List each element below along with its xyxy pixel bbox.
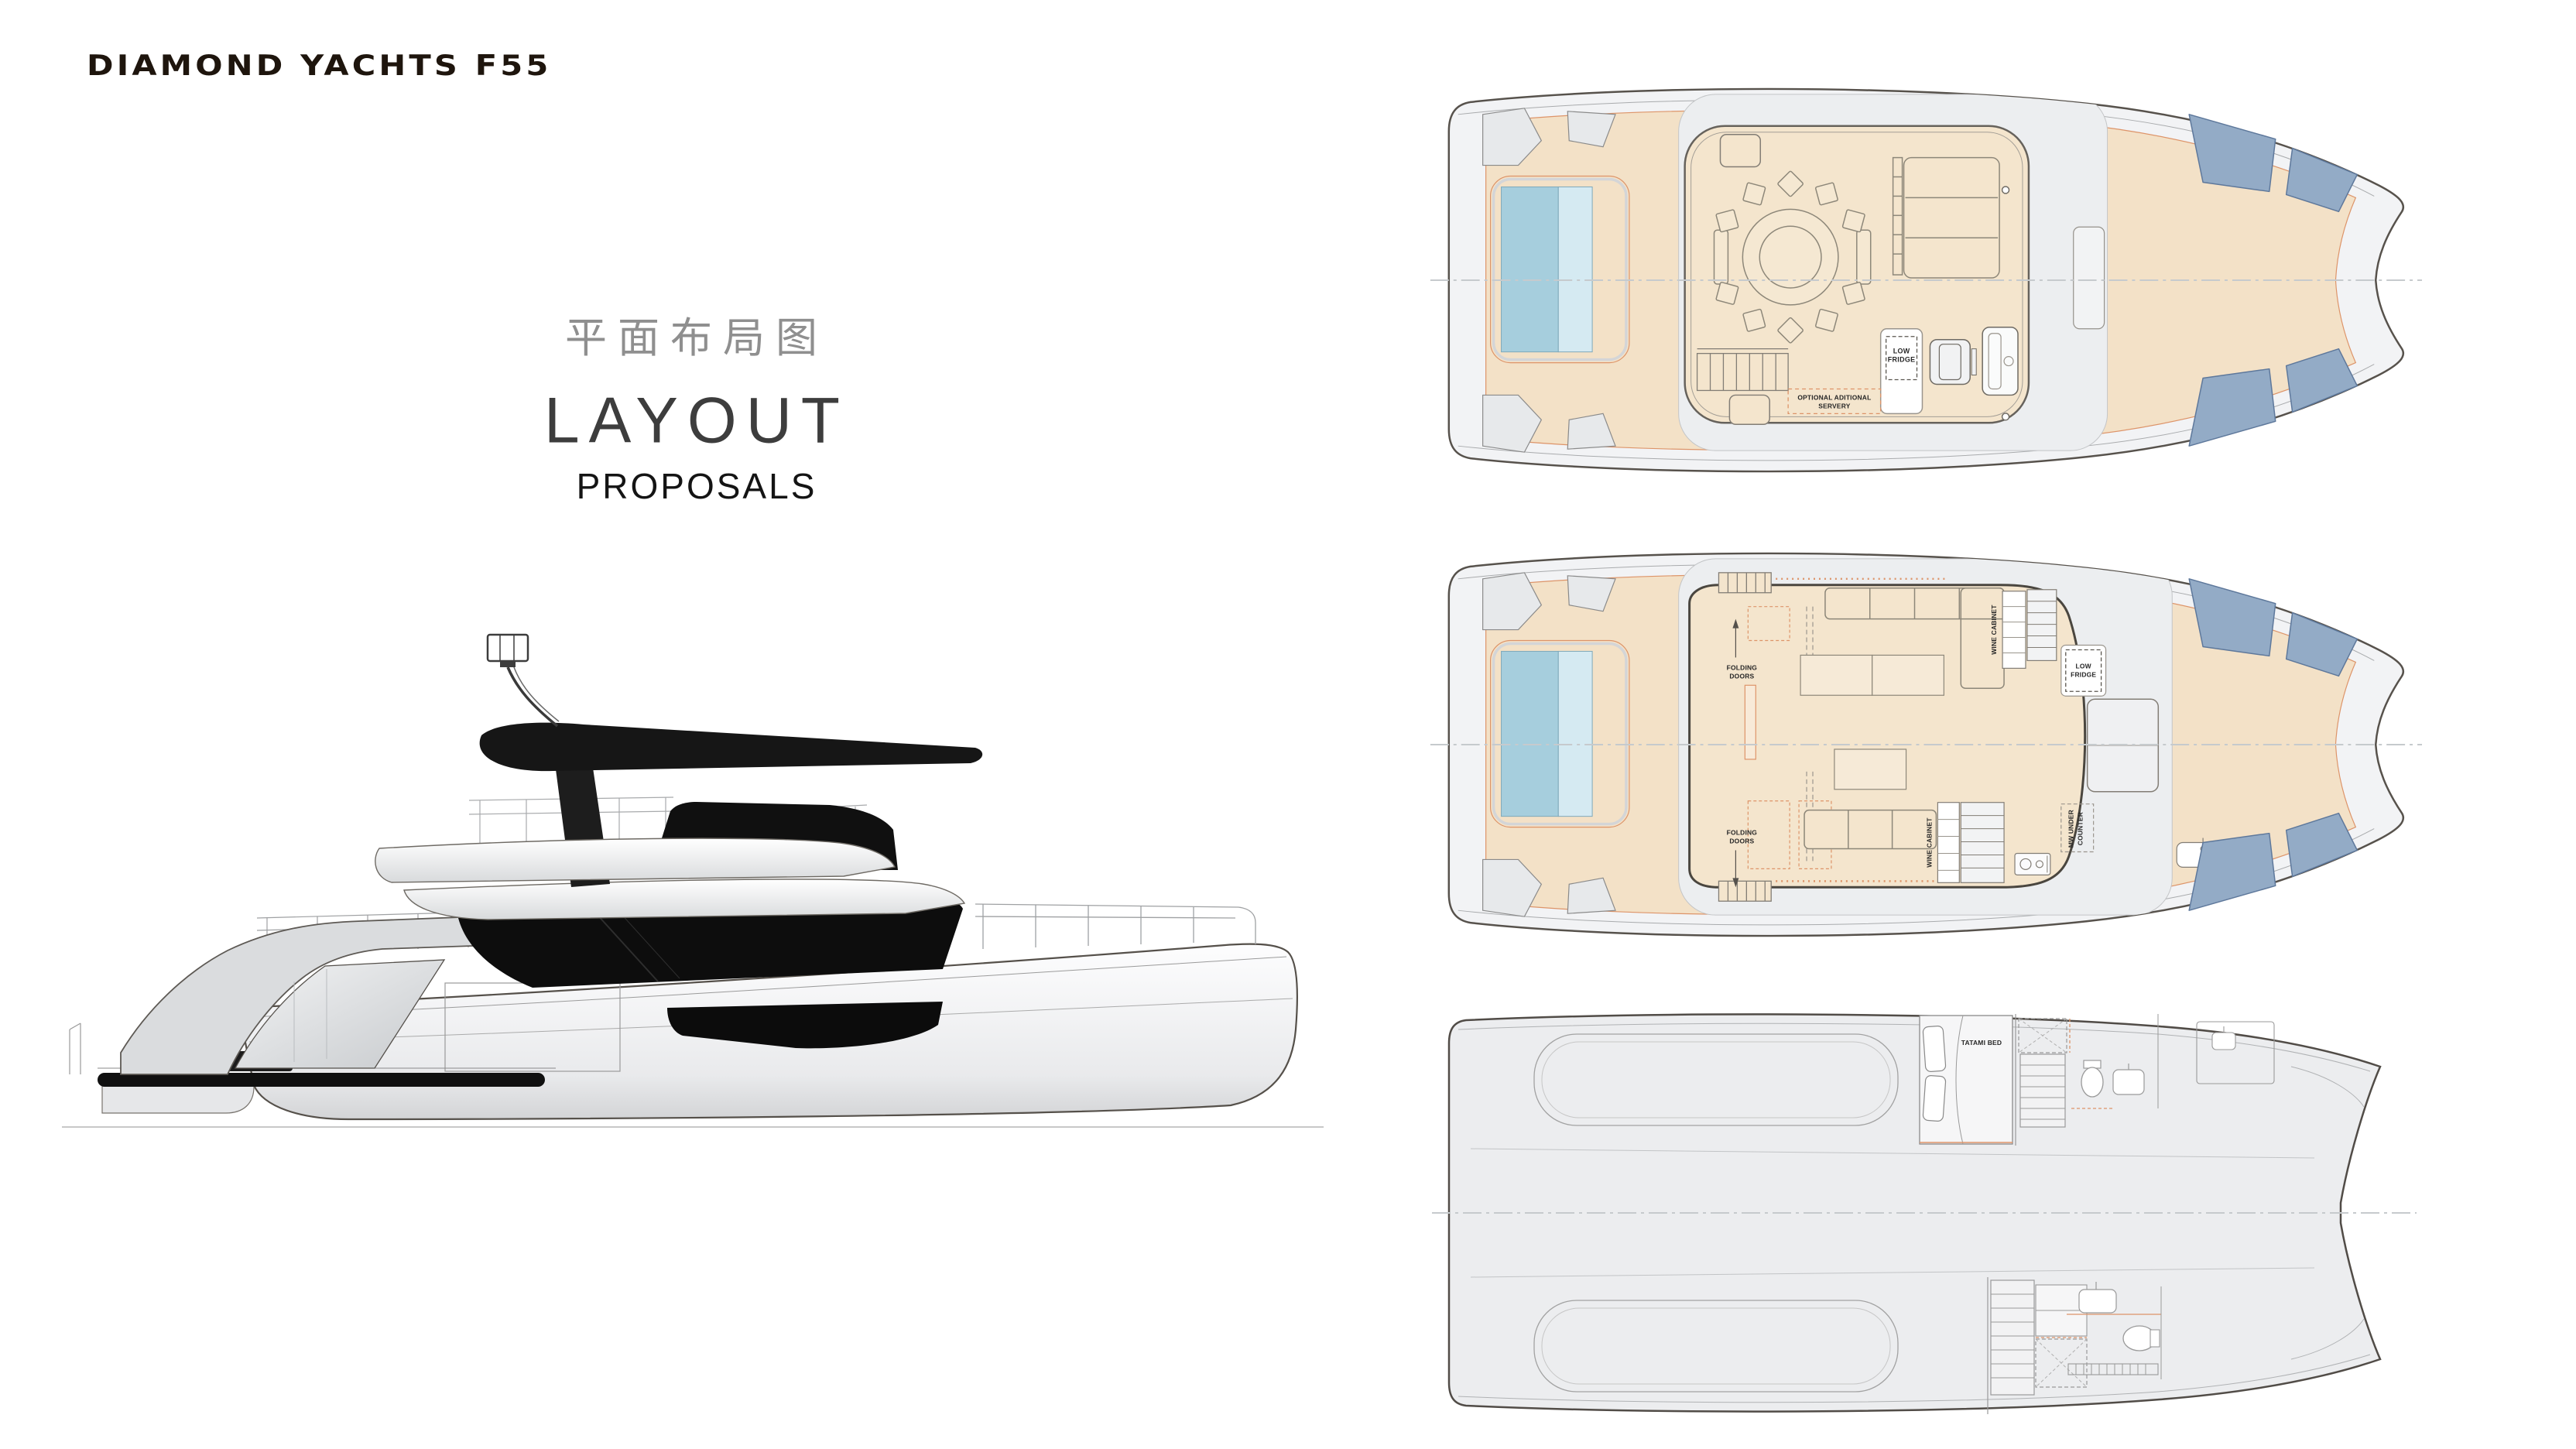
servery-label-line1: OPTIONAL ADITIONAL xyxy=(1797,393,1871,401)
low-fridge-label-line2: FRIDGE xyxy=(1888,356,1916,364)
svg-text:FOLDING: FOLDING xyxy=(1727,829,1758,837)
lower-deck-plan-drawing: TATAMI BED xyxy=(1416,992,2423,1434)
flybridge-coaming xyxy=(375,838,895,882)
stairs-fore xyxy=(2027,590,2057,661)
title-english: LAYOUT xyxy=(495,384,898,458)
svg-text:DOORS: DOORS xyxy=(1729,672,1754,680)
stairs-aft xyxy=(1961,803,2004,883)
tatami-cabin: TATAMI BED xyxy=(1920,1016,2012,1144)
tatami-bed-label: TATAMI BED xyxy=(1961,1039,2002,1046)
speaker-aft xyxy=(2002,413,2009,420)
side-step-aft xyxy=(1729,395,1769,424)
bow-sink xyxy=(2212,1033,2235,1050)
yacht-side-profile xyxy=(54,611,1331,1138)
title-subtitle: PROPOSALS xyxy=(495,465,898,507)
flybridge-plan-drawing: LOW FRIDGE OPTIONAL ADITIONAL SERVERY xyxy=(1409,68,2427,492)
saloon-sofa-aft xyxy=(1804,810,1936,849)
flybridge-deck-plan: LOW FRIDGE OPTIONAL ADITIONAL SERVERY xyxy=(1409,68,2427,492)
servery-low-fridge: LOW FRIDGE xyxy=(1881,329,1923,414)
port-toilet xyxy=(2081,1067,2103,1097)
port-sink xyxy=(2113,1070,2144,1094)
main-deck-plan: FOLDING DOORS FOLDING DOORS xyxy=(1409,533,2427,957)
svg-text:MW UNDER: MW UNDER xyxy=(2067,810,2075,848)
cooktop xyxy=(2015,853,2050,875)
low-fridge-label-line1: LOW xyxy=(1893,348,1910,355)
foredeck-hatch xyxy=(2074,227,2105,329)
svg-text:LOW: LOW xyxy=(2076,662,2091,670)
starboard-sink xyxy=(2079,1290,2116,1313)
svg-text:WINE CABINET: WINE CABINET xyxy=(1990,605,1998,655)
helm-console xyxy=(1982,327,2018,396)
sun-lounger xyxy=(1893,158,1999,278)
title-block: 平面布局图 LAYOUT PROPOSALS xyxy=(495,303,898,507)
svg-text:COUNTER: COUNTER xyxy=(2077,812,2084,845)
servery-label-line2: SERVERY xyxy=(1818,402,1850,409)
brow-band xyxy=(404,879,964,920)
galley-low-fridge: LOW FRIDGE xyxy=(2061,645,2106,696)
svg-text:WINE CABINET: WINE CABINET xyxy=(1925,817,1933,868)
side-step-fore xyxy=(1720,135,1760,167)
brand-logo: DIAMOND YACHTS F55 xyxy=(87,50,551,82)
bow-railing xyxy=(975,904,1255,949)
svg-text:DOORS: DOORS xyxy=(1729,838,1754,845)
svg-text:FRIDGE: FRIDGE xyxy=(2071,670,2096,678)
main-deck-plan-drawing: FOLDING DOORS FOLDING DOORS xyxy=(1409,533,2427,957)
antenna-mast xyxy=(488,635,559,726)
spa-pool xyxy=(1491,641,1629,827)
spa-pool xyxy=(1491,176,1629,363)
hardtop xyxy=(480,723,983,771)
speaker-fore xyxy=(2002,187,2009,194)
lower-deck-plan: TATAMI BED xyxy=(1416,992,2423,1434)
side-profile-drawing xyxy=(54,611,1331,1138)
svg-text:FOLDING: FOLDING xyxy=(1727,663,1758,671)
title-chinese: 平面布局图 xyxy=(495,303,898,365)
flybridge-stairs xyxy=(1697,349,1789,391)
